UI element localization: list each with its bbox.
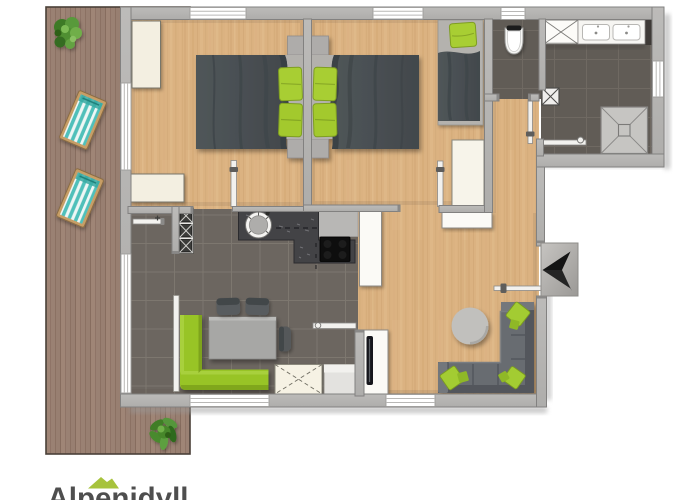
- svg-text:Alpenidyll: Alpenidyll: [48, 482, 189, 500]
